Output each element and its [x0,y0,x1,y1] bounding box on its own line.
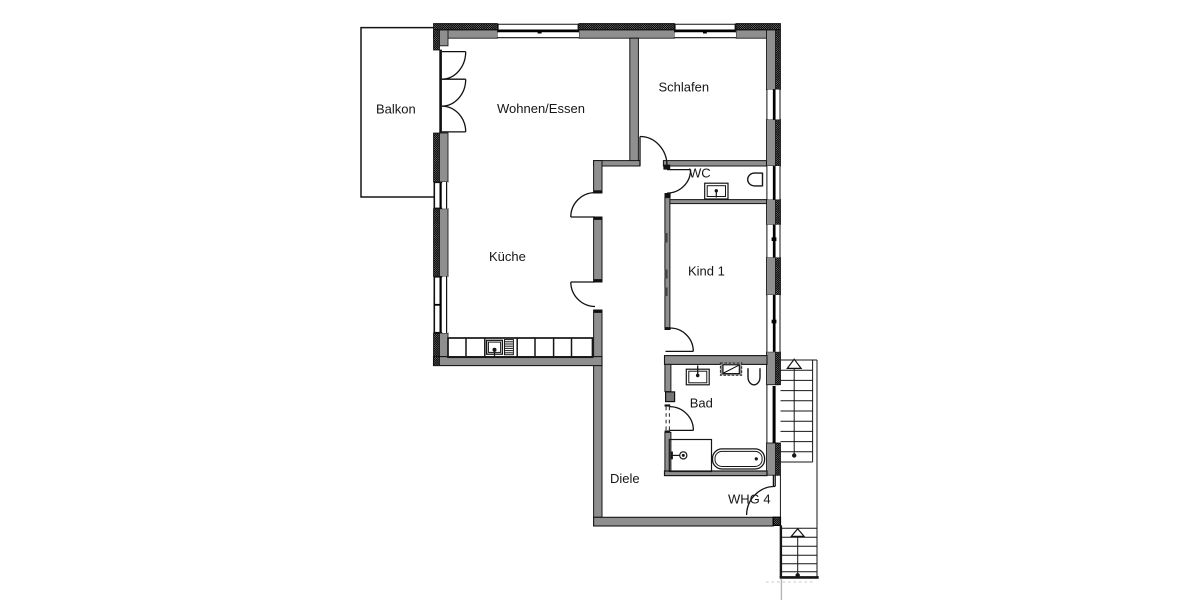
svg-text:Kind 1: Kind 1 [688,264,725,279]
svg-text:Diele: Diele [610,471,640,486]
svg-text:Bad: Bad [690,395,713,410]
svg-text:Küche: Küche [489,249,526,264]
svg-text:Schlafen: Schlafen [659,79,710,94]
svg-text:WHG 4: WHG 4 [728,492,771,507]
svg-text:Wohnen/Essen: Wohnen/Essen [497,101,585,116]
svg-text:WC: WC [689,165,711,180]
svg-text:Balkon: Balkon [376,101,416,116]
